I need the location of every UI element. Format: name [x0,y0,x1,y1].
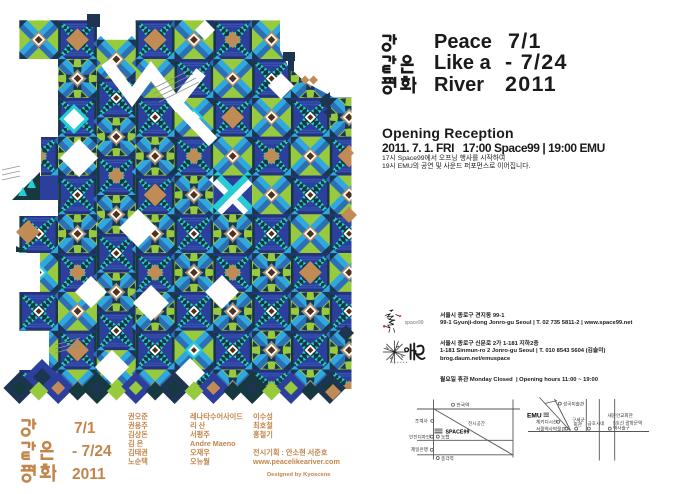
svg-text:역사술구: 역사술구 [613,425,630,432]
svg-text:회관: 회관 [574,421,583,428]
svg-text:성곡미술관: 성곡미술관 [563,401,585,408]
svg-text:인진디자인: 인진디자인 [409,433,430,440]
svg-text:금호시네: 금호시네 [588,420,605,427]
svg-text:EMU: EMU [527,413,542,420]
svg-text:새문안교회관: 새문안교회관 [608,412,634,419]
svg-text:조계사: 조계사 [415,417,428,424]
svg-text:체키디시션: 체키디시션 [536,419,557,426]
svg-text:농협: 농협 [441,434,449,440]
svg-text:종각역: 종각역 [441,455,454,462]
svg-text:서울역사박물관: 서울역사박물관 [536,425,566,432]
svg-text:전시공간: 전시공간 [468,420,486,426]
svg-text:안국역: 안국역 [457,402,470,409]
svg-text:제일은행: 제일은행 [411,446,428,453]
